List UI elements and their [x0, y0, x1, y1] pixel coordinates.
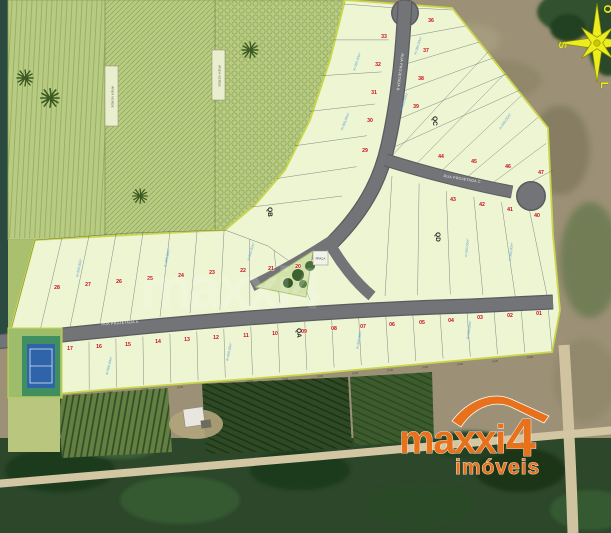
lot-number: 16 — [96, 344, 102, 350]
lot-number: 01 — [536, 311, 542, 317]
lot-number: 29 — [362, 148, 368, 154]
center-watermark: maxxi4 — [140, 256, 321, 321]
lot-dimension-text: 10,00 — [492, 360, 499, 364]
lot-number: 38 — [418, 76, 424, 82]
quadra-label: QB — [266, 207, 273, 217]
lot-number: 30 — [367, 118, 373, 124]
lot-dimension-text: 10,00 — [387, 369, 394, 373]
lot-dimension-text: 10,00 — [282, 378, 289, 382]
lot-dimension-text: 10,00 — [527, 356, 534, 360]
left-edge-strip — [0, 0, 8, 340]
lot-number: 13 — [184, 337, 190, 343]
lot-number: 05 — [419, 320, 425, 326]
lot-dimension-text: 10,00 — [352, 372, 359, 376]
logo-tagline: imóveis — [455, 456, 540, 479]
lot-number: 40 — [534, 213, 540, 219]
lot-dimension-text: 10,00 — [457, 363, 464, 367]
lot-number: 28 — [54, 285, 60, 291]
lot-dimension-text: 10,00 — [72, 394, 79, 398]
lot-number: 17 — [67, 346, 73, 352]
lot-dimension-text: 10,00 — [212, 383, 219, 387]
green-area-label: ÁREA VERDE — [218, 65, 222, 87]
site-plan-map: ÁREA VERDEÁREA VERDE — [0, 0, 611, 533]
lot-number: 03 — [477, 315, 483, 321]
map-canvas: ÁREA VERDEÁREA VERDE — [0, 0, 611, 533]
lot-number: 33 — [381, 34, 387, 40]
lot-number: 10 — [272, 331, 278, 337]
lot-number: 45 — [471, 159, 477, 165]
lot-dimension-text: 10,00 — [142, 388, 149, 392]
lot-number: 36 — [428, 18, 434, 24]
quadra-label: QC — [431, 116, 438, 126]
lot-number: 42 — [479, 202, 485, 208]
lot-dimension-text: 10,00 — [107, 391, 114, 395]
compass-letter: L — [598, 82, 610, 89]
lot-dimension-text: 10,00 — [247, 380, 254, 384]
lot-number: 39 — [413, 104, 419, 110]
lower-lawn — [8, 398, 60, 452]
recreation-area — [8, 328, 62, 452]
lot-number: 31 — [371, 90, 377, 96]
green-area-label: ÁREA VERDE — [111, 86, 115, 108]
lot-number: 43 — [450, 197, 456, 203]
quadra-label: QA — [295, 328, 302, 338]
compass-letter: S — [556, 41, 568, 48]
lot-number: 46 — [505, 164, 511, 170]
lot-number: 26 — [116, 279, 122, 285]
lot-number: 02 — [507, 313, 513, 319]
park-zone-diagonal-hatch — [105, 0, 215, 238]
lot-number: 37 — [423, 48, 429, 54]
lot-number: 14 — [155, 339, 161, 345]
lot-number: 32 — [375, 62, 381, 68]
compass-letter: O — [601, 5, 611, 14]
lot-number: 04 — [448, 318, 454, 324]
lot-dimension-text: 10,00 — [422, 366, 429, 370]
lot-number: 15 — [125, 342, 131, 348]
lot-number: 12 — [213, 335, 219, 341]
lot-dimension-text: 10,00 — [177, 386, 184, 390]
lot-number: 47 — [538, 170, 544, 176]
park-zone-vertical-hatch — [8, 0, 105, 238]
lot-number: 06 — [389, 322, 395, 328]
lot-number: 27 — [85, 282, 91, 288]
lot-number: 44 — [438, 154, 444, 160]
lot-number: 07 — [360, 324, 366, 330]
quadra-label: QD — [434, 232, 441, 242]
lot-number: 41 — [507, 207, 513, 213]
lot-number: 11 — [243, 333, 249, 339]
lot-number: 08 — [331, 326, 337, 332]
cul-de-sac-right — [518, 183, 545, 210]
lot-dimension-text: 10,00 — [317, 375, 324, 379]
